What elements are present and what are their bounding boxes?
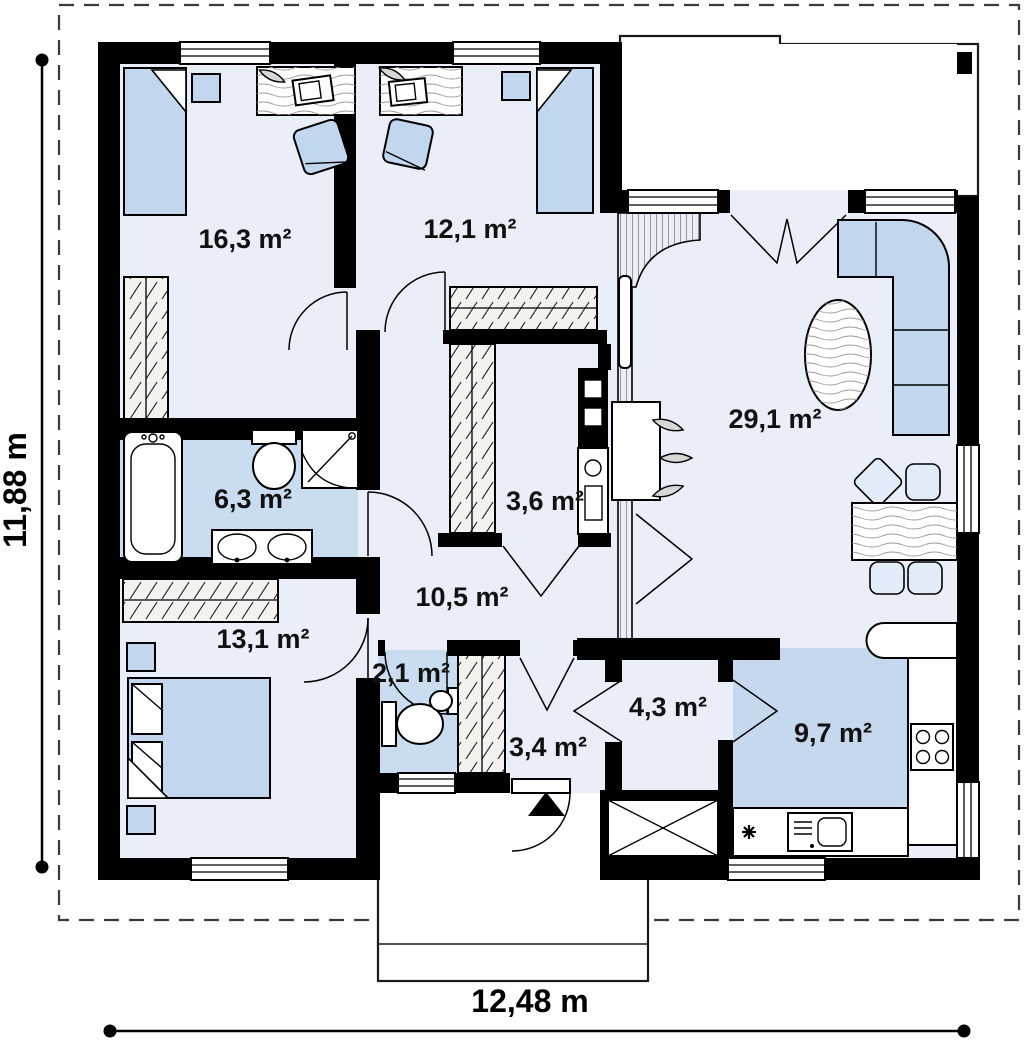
window-dining [957,445,979,533]
laptop-1 [293,75,334,105]
room-label-wardrobe: 3,6 m² [506,486,584,516]
room-entry: 3,4 m² [509,732,587,762]
shower [302,430,358,488]
closet-bedroom-1 [124,277,168,420]
desk-2 [378,64,462,115]
kitchen-sink [788,813,852,851]
stool-2 [906,464,940,500]
room-label-pantry: 4,3 m² [629,692,707,722]
window-living-right [865,190,955,213]
closet-wardrobe-room [450,344,495,533]
flue-2 [584,408,602,426]
floor-plan-canvas: 16,3 m² 12,1 m² [0,0,1024,1056]
room-label-toilet: 2,1 m² [372,658,450,688]
dining-table [852,503,957,560]
flue-1 [584,380,602,398]
pillow-1 [132,684,162,734]
cooktop [911,724,953,770]
dimension-label-horizontal: 12,48 m [471,983,588,1019]
dining-chair-2 [908,562,942,594]
window-bedroom-2 [453,42,540,64]
closet-bedroom-2 [450,287,597,330]
room-label-bedroom-3: 13,1 m² [216,624,309,654]
appliance-marker [742,825,756,839]
dining-chair-1 [870,562,904,594]
closet-bedroom-3 [123,579,278,622]
floor-plan-page: 16,3 m² 12,1 m² [0,0,1024,1056]
room-label-bedroom-1: 16,3 m² [198,224,291,254]
window-toilet [398,773,455,793]
dimension-label-vertical: 11,88 m [0,432,33,548]
room-label-entry: 3,4 m² [509,732,587,762]
window-kitchen-east [957,782,979,858]
nightstand-1 [192,74,220,102]
laptop-2 [389,78,427,106]
window-living-left [628,190,718,213]
room-label-living: 29,1 m² [728,404,821,434]
room-label-bathroom: 6,3 m² [214,484,292,514]
nightstand-2 [502,72,530,100]
window-bedroom-1 [180,42,270,64]
storage-box [608,800,718,856]
window-bedroom-3 [191,858,288,880]
room-hall: 10,5 m² [415,582,508,612]
desk-1 [257,66,355,115]
nightstand-3 [127,643,155,671]
room-label-hall: 10,5 m² [415,582,508,612]
counter-peninsula [867,623,958,658]
window-kitchen-south [728,858,825,880]
bathtub [124,432,182,562]
nightstand-4 [127,806,155,834]
room-label-kitchen: 9,7 m² [794,718,872,748]
closet-hall [458,652,505,773]
double-washbasin [212,530,312,564]
open-door-leaf [619,276,631,368]
toilet-bathroom [252,430,296,489]
room-label-bedroom-2: 12,1 m² [423,214,516,244]
